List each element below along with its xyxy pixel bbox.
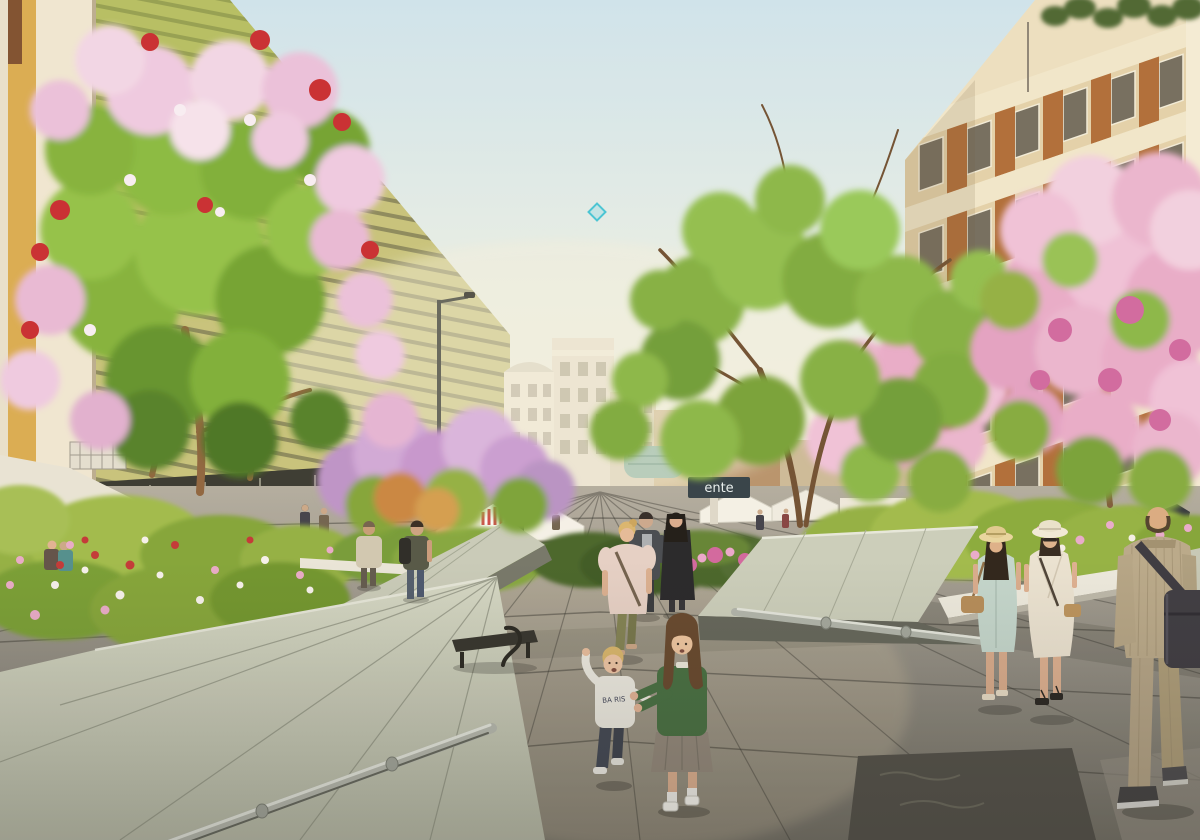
plaza-rendering: ente (0, 0, 1200, 840)
rendering-canvas: ente (0, 0, 1200, 840)
vignette (0, 560, 1200, 840)
